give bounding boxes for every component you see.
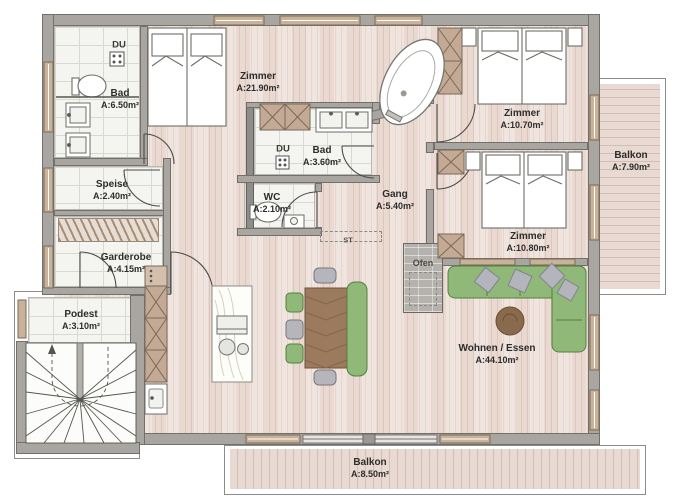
wall (130, 433, 600, 445)
room-label-bad2: BadA:3.60m² (303, 145, 341, 167)
shower-label-bad2: DU (276, 144, 290, 155)
balcony-right-deck (600, 84, 660, 289)
wall (588, 14, 600, 445)
wall (237, 175, 380, 183)
room-label-zimmer1: ZimmerA:21.90m² (236, 71, 279, 93)
wall (140, 26, 148, 166)
room-label-zimmer2: ZimmerA:10.70m² (500, 108, 543, 130)
room-label-speise: SpeiseA:2.40m² (93, 179, 131, 201)
wall (42, 14, 600, 26)
stairs-floor (26, 343, 136, 443)
wall (426, 142, 434, 153)
room-label-balkon2: BalkonA:8.50m² (351, 457, 389, 479)
wall (16, 442, 140, 454)
wall (237, 228, 322, 236)
room-label-podest: PodestA:3.10m² (62, 309, 100, 331)
wall (434, 142, 588, 150)
wall (42, 14, 54, 295)
wall (54, 158, 148, 166)
wall (16, 341, 28, 454)
floor-plan: BadA:6.50m² ZimmerA:21.90m² ZimmerA:10.7… (0, 0, 700, 500)
room-label-wohnen: Wohnen / EssenA:44.10m² (458, 343, 535, 365)
room-label-bad1: BadA:6.50m² (101, 88, 139, 110)
wall (372, 102, 380, 124)
wall (246, 102, 380, 108)
room-label-wc: WCA:2.10m² (253, 192, 291, 214)
room-label-gang: GangA:5.40m² (376, 189, 414, 211)
oven-label: Ofen (413, 258, 434, 268)
wall (54, 210, 164, 216)
wall (163, 158, 171, 295)
shower-label-bad1: DU (112, 40, 126, 51)
step-label: ST (343, 236, 353, 245)
wall (434, 258, 588, 266)
room-label-balkon1: BalkonA:7.90m² (612, 150, 650, 172)
garderobe-coat-rack (58, 218, 159, 242)
oven-dashed-outline (409, 272, 437, 306)
wall (42, 287, 171, 295)
room-label-garderobe: GarderobeA:4.15m² (101, 252, 152, 274)
balcony-bottom-deck (230, 449, 640, 489)
room-label-zimmer3: ZimmerA:10.80m² (506, 231, 549, 253)
wall (426, 92, 434, 104)
wall (130, 295, 145, 445)
wall (315, 183, 322, 192)
